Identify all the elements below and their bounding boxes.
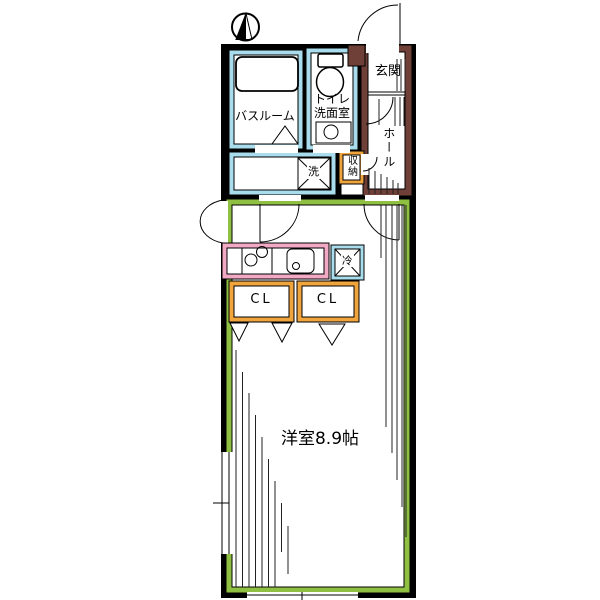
entrance-wall-jut: [348, 45, 365, 66]
bathroom-label: バスルーム: [227, 110, 303, 124]
north-arrow-icon: [232, 14, 259, 41]
stove-icon: [242, 247, 272, 275]
floor-plan: バスルーム トイレ 洗面室 玄関 ホール 収納 洗 冷 CL CL 洋室8.9帖: [0, 0, 600, 600]
washing-machine-label: 洗: [307, 166, 320, 179]
kitchen-counter: [222, 243, 329, 279]
toilet-icon: [317, 54, 344, 97]
storage-lower-box: [341, 184, 363, 195]
toilet-label-line2: 洗面室: [304, 107, 360, 121]
storage-label: 収納: [345, 155, 357, 183]
bathtub-icon: [236, 57, 298, 91]
closet-left-label: CL: [229, 293, 294, 308]
kitchen-sink-icon: [287, 249, 314, 273]
window-bottom: [247, 592, 358, 600]
entrance-label: 玄関: [369, 65, 407, 80]
toilet-label-line1: トイレ: [306, 93, 358, 107]
bathroom-room: [229, 50, 303, 149]
hall-label: ホール: [381, 127, 395, 183]
window-left: [213, 452, 233, 554]
closet-right-label: CL: [297, 293, 359, 308]
front-door-arc: [358, 5, 398, 41]
main-room-label: 洋室8.9帖: [256, 430, 384, 450]
washbasin-icon: [316, 122, 351, 143]
refrigerator-label: 冷: [341, 255, 354, 267]
